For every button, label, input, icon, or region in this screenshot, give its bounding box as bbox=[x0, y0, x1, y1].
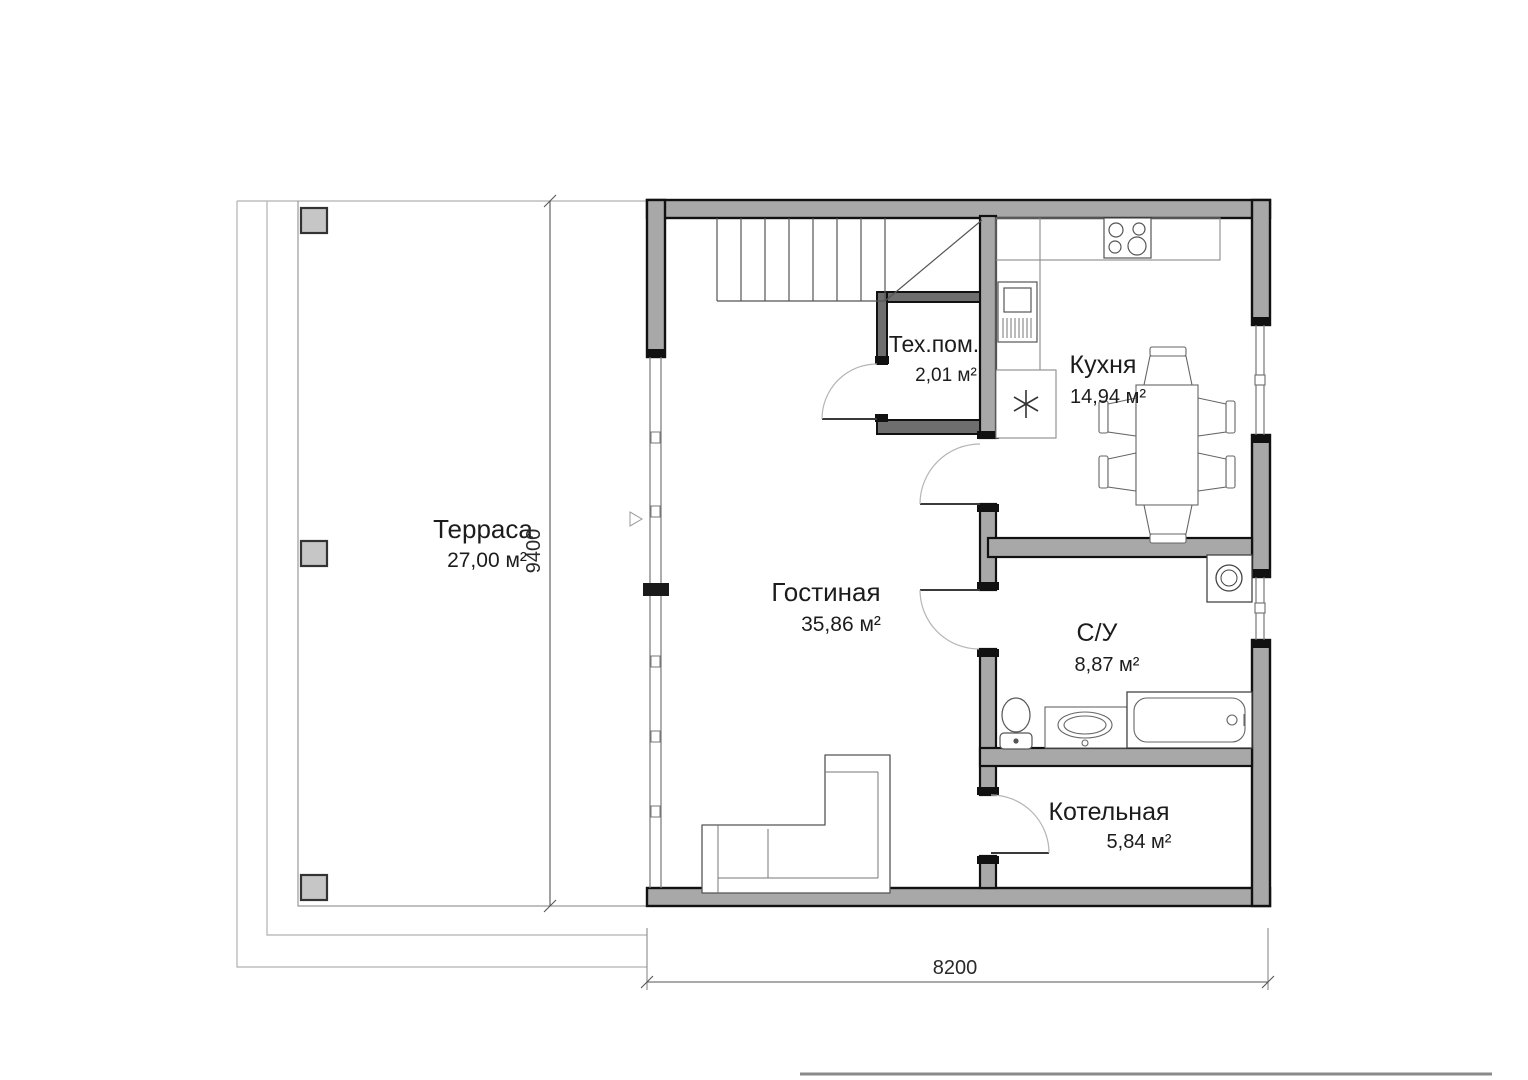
door-bathroom bbox=[920, 590, 980, 649]
jamb bbox=[875, 356, 889, 364]
wall-bath-boiler-divider bbox=[980, 748, 1252, 766]
floor-plan-page: Терраса 27,00 м² 9400 8200 bbox=[0, 0, 1528, 1080]
door-swing-arc bbox=[991, 795, 1049, 853]
vanity-counter bbox=[1045, 707, 1127, 748]
mullion-tick bbox=[651, 432, 660, 443]
bathtub-rim bbox=[1127, 692, 1252, 748]
techroom-wall-left bbox=[877, 292, 887, 364]
chair-seat bbox=[1108, 453, 1136, 491]
cap-window2-top bbox=[1252, 569, 1270, 577]
techroom-wall-bottom bbox=[877, 420, 980, 434]
terrace-boundary-lines bbox=[237, 201, 647, 967]
washer-body bbox=[1207, 555, 1252, 602]
kitchen-fixtures bbox=[996, 218, 1235, 543]
window-right-2 bbox=[1255, 577, 1265, 640]
door-boiler-room bbox=[991, 795, 1049, 853]
chair-seat bbox=[1144, 505, 1192, 534]
toilet-bowl bbox=[1002, 698, 1030, 732]
mullion-tick bbox=[651, 656, 660, 667]
bathroom-area: 8,87 м² bbox=[1075, 654, 1140, 676]
wall-kitchen-bath-divider bbox=[988, 538, 1252, 557]
bathroom-label: С/У bbox=[1077, 619, 1118, 647]
stair-treads bbox=[741, 218, 861, 301]
door-kitchen bbox=[920, 444, 980, 504]
jamb bbox=[977, 856, 999, 864]
chair-back bbox=[1099, 456, 1108, 488]
wall-right-pier bbox=[1252, 435, 1270, 577]
wall-top bbox=[647, 200, 1270, 218]
chair-back bbox=[1150, 534, 1186, 543]
washing-machine bbox=[1207, 555, 1252, 602]
stair-outline bbox=[717, 218, 885, 301]
door-swing-arc bbox=[822, 364, 877, 419]
stair-break-line bbox=[885, 220, 982, 301]
boiler-room-area: 5,84 м² bbox=[1107, 831, 1172, 853]
boiler-unit bbox=[996, 370, 1056, 438]
glazing-mullion-ticks bbox=[651, 432, 660, 817]
bathroom-fixtures bbox=[1000, 555, 1252, 749]
jamb bbox=[977, 582, 999, 590]
door-swing-arc bbox=[920, 590, 979, 649]
window-right-1 bbox=[1255, 325, 1265, 435]
kitchen-label: Кухня bbox=[1070, 351, 1137, 379]
jamb bbox=[977, 787, 999, 795]
window1-tick bbox=[1255, 375, 1265, 385]
stove bbox=[1104, 218, 1151, 258]
sink-vanity bbox=[1045, 707, 1127, 748]
dimension-depth bbox=[544, 195, 556, 912]
sofa-outline bbox=[702, 755, 890, 893]
terrace-columns bbox=[301, 208, 327, 900]
appliance-panel bbox=[1004, 288, 1031, 312]
kitchen-appliance bbox=[998, 282, 1037, 342]
techroom-wall-top bbox=[877, 292, 980, 302]
mullion-tick bbox=[651, 506, 660, 517]
wall-bath-left bbox=[980, 649, 996, 795]
sofa bbox=[702, 755, 890, 893]
width-dimension-text: 8200 bbox=[933, 957, 978, 979]
tech-room-area: 2,01 м² bbox=[915, 365, 977, 386]
mullion-tick bbox=[651, 731, 660, 742]
chair-back bbox=[1226, 456, 1235, 488]
toilet-button bbox=[1014, 739, 1018, 743]
jamb bbox=[977, 649, 999, 657]
terrace: Терраса 27,00 м² bbox=[237, 201, 647, 967]
terrace-column-top bbox=[301, 208, 327, 233]
wall-right-upper bbox=[1252, 200, 1270, 325]
tech-room-walls bbox=[877, 292, 980, 434]
living-room-label: Гостиная bbox=[771, 577, 880, 607]
wall-right-lower bbox=[1252, 640, 1270, 906]
door-swing-arc bbox=[920, 444, 980, 504]
opening-direction-marker bbox=[630, 512, 642, 526]
glazing-post bbox=[643, 583, 669, 596]
chair-seat bbox=[1198, 453, 1226, 491]
kitchen-area: 14,94 м² bbox=[1070, 386, 1146, 408]
tech-room-label: Тех.пом. bbox=[889, 331, 979, 357]
window2-tick bbox=[1255, 603, 1265, 613]
wall-left-upper bbox=[647, 200, 665, 357]
boiler-room-label: Котельная bbox=[1048, 798, 1169, 826]
cap-window1-top bbox=[1252, 317, 1270, 325]
bathtub bbox=[1127, 692, 1252, 748]
toilet bbox=[1000, 698, 1032, 749]
floor-plan-drawing: Терраса 27,00 м² 9400 8200 bbox=[0, 0, 1528, 1080]
depth-dimension-text: 9400 bbox=[523, 529, 545, 574]
chair-seat bbox=[1144, 356, 1192, 385]
terrace-area: 27,00 м² bbox=[447, 549, 527, 572]
terrace-column-middle bbox=[301, 541, 327, 566]
terrace-label: Терраса bbox=[433, 514, 533, 544]
wall-kitchen-left bbox=[980, 216, 996, 438]
cap-left-glazing-top bbox=[646, 349, 666, 357]
terrace-column-bottom bbox=[301, 875, 327, 900]
door-tech-room bbox=[822, 364, 877, 419]
staircase bbox=[717, 218, 982, 301]
living-room-area: 35,86 м² bbox=[801, 613, 881, 636]
cap-window1-bottom bbox=[1252, 435, 1270, 443]
cap-window2-bottom bbox=[1252, 640, 1270, 648]
chair-seat bbox=[1198, 398, 1226, 436]
glazed-wall-left bbox=[630, 357, 669, 888]
chair-back bbox=[1150, 347, 1186, 356]
mullion-tick bbox=[651, 806, 660, 817]
chair-back bbox=[1226, 401, 1235, 433]
jamb bbox=[977, 504, 999, 512]
